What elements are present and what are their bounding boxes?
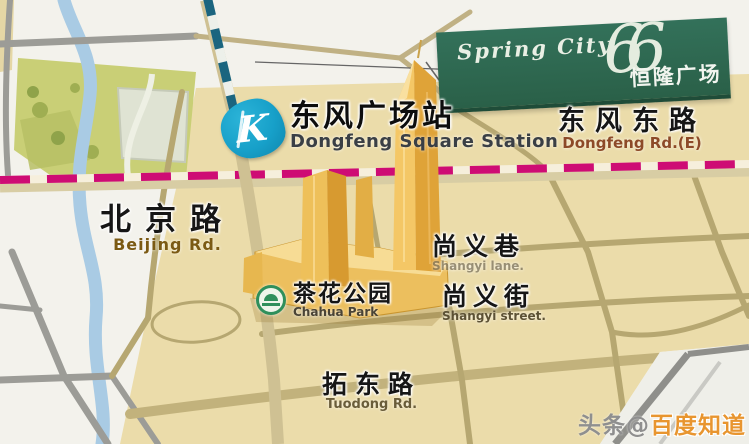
road-label-beijing: 北京路 Beijing Rd. [100, 204, 235, 253]
watermark-prefix: 头条@ [578, 413, 650, 439]
chahua-cjk: 茶花公园 [293, 282, 393, 306]
station-label: 东风广场站 Dongfeng Square Station [290, 101, 558, 151]
park-logo-base [262, 303, 280, 306]
park-label-chahua: 茶花公园 Chahua Park [256, 282, 393, 319]
banner-cjk-title: 恒隆广场 [629, 58, 722, 93]
park-logo-dome [264, 294, 278, 301]
shangyi-lane-cjk: 尚义巷 [432, 234, 525, 260]
spring-city-banner: Spring City 66 恒隆广场 [436, 17, 731, 113]
shangyi-street-en: Shangyi street. [442, 310, 546, 323]
beijing-cjk: 北京路 [100, 204, 235, 237]
banner-script-title: Spring City [456, 32, 612, 65]
shangyi-street-cjk: 尚义街 [442, 284, 546, 310]
map: Spring City 66 恒隆广场 K 东风广场站 Dongfeng Squ… [0, 0, 749, 444]
dongfeng-en: Dongfeng Rd.(E) [558, 136, 706, 152]
road-label-shangyi-street: 尚义街 Shangyi street. [442, 284, 546, 323]
chahua-park-logo-icon [256, 285, 286, 315]
station-name-en: Dongfeng Square Station [290, 133, 558, 152]
road-label-tuodong: 拓东路 Tuodong Rd. [322, 372, 421, 412]
beijing-en: Beijing Rd. [100, 237, 235, 254]
road-label-dongfeng: 东风东路 Dongfeng Rd.(E) [558, 108, 706, 152]
station-name-cjk: 东风广场站 [290, 101, 558, 133]
shangyi-lane-en: Shangyi lane. [432, 260, 525, 273]
tuodong-en: Tuodong Rd. [322, 398, 421, 412]
watermark: 头条@百度知道 [578, 406, 746, 440]
chahua-en: Chahua Park [293, 306, 393, 319]
tuodong-cjk: 拓东路 [322, 372, 421, 398]
metro-logo-letter: K [237, 106, 268, 152]
dongfeng-cjk: 东风东路 [558, 108, 706, 136]
road-label-shangyi-lane: 尚义巷 Shangyi lane. [432, 234, 525, 273]
watermark-brand: 百度知道 [650, 413, 746, 439]
